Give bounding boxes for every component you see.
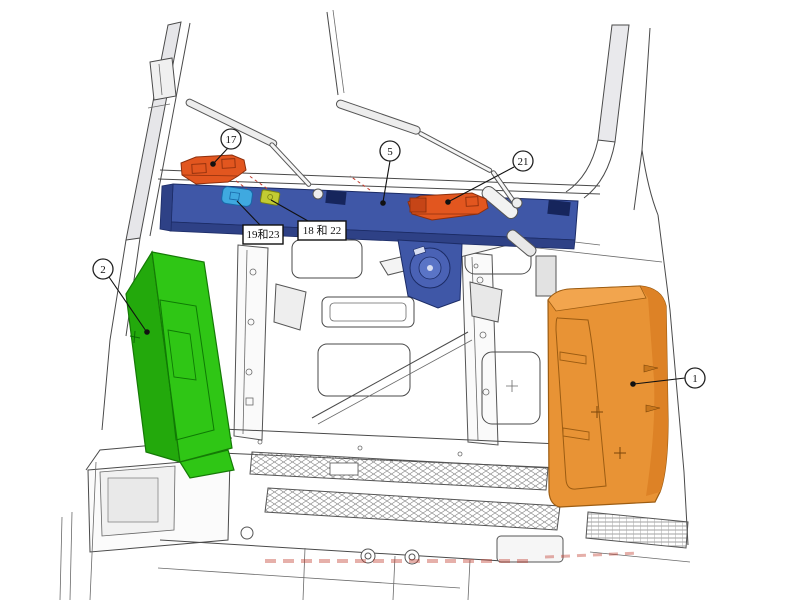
- svg-text:17: 17: [226, 134, 238, 146]
- grille: [250, 452, 560, 530]
- svg-text:1: 1: [692, 373, 698, 385]
- wiper-pivot-clip-left: [325, 190, 346, 205]
- svg-text:21: 21: [518, 156, 529, 168]
- svg-text:18 和 22: 18 和 22: [303, 224, 342, 237]
- diagram-page: 17 5 21 2 1 19和23 18 和 22: [0, 0, 800, 600]
- center-frame: [198, 228, 562, 468]
- wiper-pivot-clip-right: [547, 200, 570, 216]
- red-watermark-marks: [265, 553, 640, 561]
- assembly-diagram: 17 5 21 2 1 19和23 18 和 22: [0, 0, 800, 600]
- left-corner-panel: [126, 252, 234, 478]
- right-corner-panel: [548, 286, 668, 507]
- wiper-motor-assembly: [398, 240, 462, 308]
- bracket-17: [181, 155, 246, 184]
- svg-text:19和23: 19和23: [247, 228, 280, 241]
- clip-cyan: [221, 186, 253, 207]
- svg-text:5: 5: [387, 146, 393, 158]
- svg-text:2: 2: [100, 264, 106, 276]
